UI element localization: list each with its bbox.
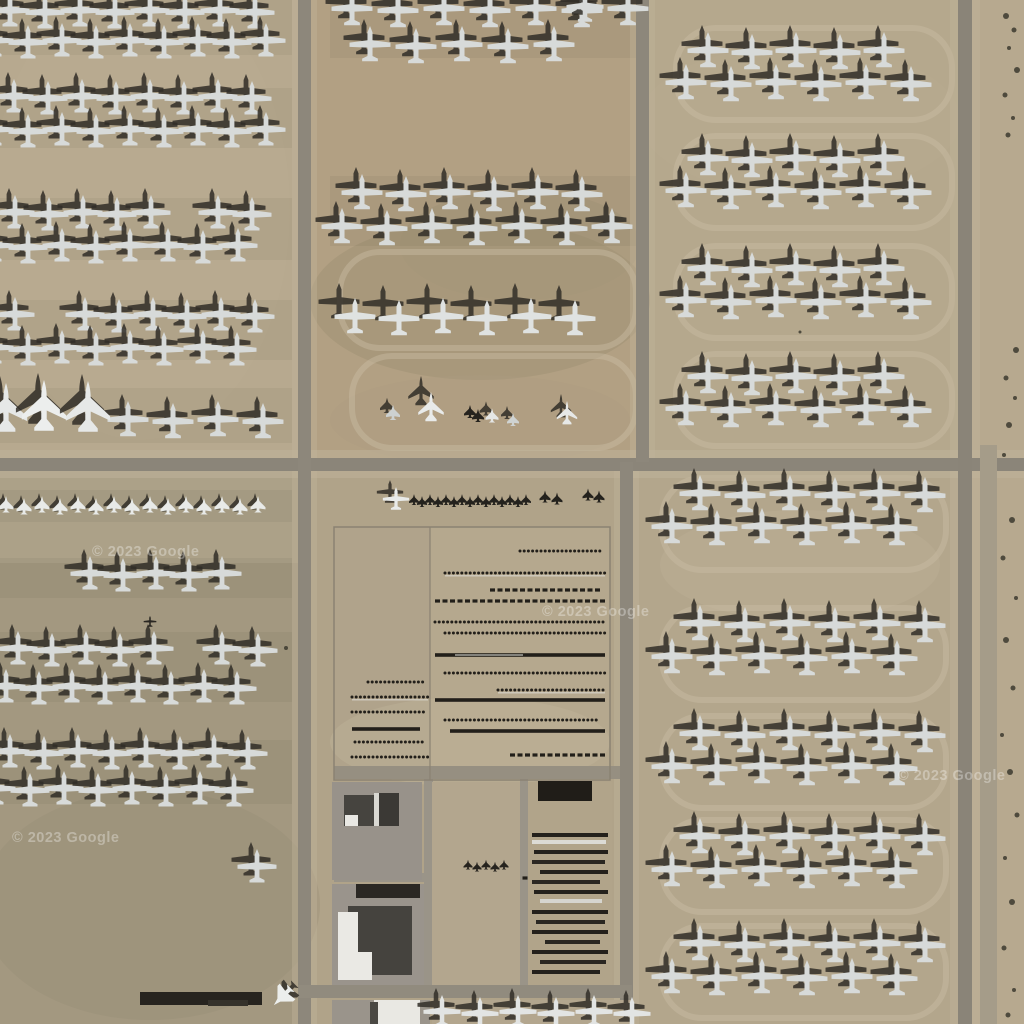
- stored-airframe-dot: [556, 550, 559, 553]
- stored-airframe-dot: [438, 621, 441, 624]
- stored-airframe-dot: [490, 672, 493, 675]
- stored-airframe-dot: [547, 621, 550, 624]
- scrap-dash: [535, 588, 540, 591]
- vegetation: [1003, 856, 1007, 860]
- stored-airframe-dot: [421, 681, 424, 684]
- stored-airframe-dot: [565, 632, 568, 635]
- stored-airframe-dot: [551, 621, 554, 624]
- stored-airframe-dot: [473, 719, 476, 722]
- scrap-dash: [543, 588, 548, 591]
- building: [374, 793, 379, 826]
- vegetation: [1003, 637, 1009, 643]
- stored-airframe-dot: [481, 572, 484, 575]
- vegetation: [1007, 769, 1013, 775]
- stored-airframe-dot: [393, 696, 396, 699]
- stored-airframe-dot: [372, 711, 375, 714]
- vegetation: [1003, 13, 1009, 19]
- stored-airframe-dot: [444, 719, 447, 722]
- stored-airframe-dot: [421, 741, 424, 744]
- stored-airframe-dot: [371, 681, 374, 684]
- scrap-dash: [523, 876, 528, 879]
- stored-airframe-dot: [498, 672, 501, 675]
- stored-airframe-dot: [540, 719, 543, 722]
- google-watermark: © 2023 Google: [542, 604, 649, 620]
- stored-airframe-dot: [528, 632, 531, 635]
- stored-airframe-dot: [582, 672, 585, 675]
- stored-airframe-dot: [570, 632, 573, 635]
- stored-airframe-dot: [455, 621, 458, 624]
- stored-airframe-dot: [591, 672, 594, 675]
- scrap-strip: [352, 727, 420, 731]
- scrap-dash: [533, 599, 538, 602]
- stored-airframe-dot: [578, 672, 581, 675]
- stored-airframe-dot: [498, 632, 501, 635]
- vegetation: [1006, 422, 1012, 428]
- stored-airframe-dot: [507, 632, 510, 635]
- stored-airframe-dot: [414, 756, 417, 759]
- stored-airframe-dot: [422, 711, 425, 714]
- google-watermark: © 2023 Google: [898, 768, 1005, 784]
- scrap-pile: [540, 960, 606, 964]
- scrap-dash: [570, 599, 575, 602]
- stored-airframe-dot: [574, 719, 577, 722]
- scrap-dash: [525, 753, 530, 756]
- stored-airframe-dot: [400, 681, 403, 684]
- stored-airframe-dot: [586, 719, 589, 722]
- stored-airframe-dot: [486, 632, 489, 635]
- stored-airframe-dot: [375, 681, 378, 684]
- stored-airframe-dot: [557, 672, 560, 675]
- stored-airframe-dot: [498, 719, 501, 722]
- stored-airframe-dot: [452, 672, 455, 675]
- stored-airframe-dot: [376, 696, 379, 699]
- stored-airframe-dot: [393, 711, 396, 714]
- stored-airframe-dot: [515, 719, 518, 722]
- stored-airframe-dot: [602, 689, 605, 692]
- stored-airframe-dot: [372, 696, 375, 699]
- stored-airframe-dot: [502, 719, 505, 722]
- stored-airframe-dot: [582, 719, 585, 722]
- stored-airframe-dot: [480, 621, 483, 624]
- stored-airframe-dot: [527, 550, 530, 553]
- stored-airframe-dot: [593, 621, 596, 624]
- stored-airframe-dot: [384, 696, 387, 699]
- scrap-dash: [565, 588, 570, 591]
- stored-airframe-dot: [375, 741, 378, 744]
- stored-airframe-dot: [408, 741, 411, 744]
- stored-airframe-dot: [568, 621, 571, 624]
- stored-airframe-dot: [418, 711, 421, 714]
- stored-airframe-dot: [586, 632, 589, 635]
- stored-airframe-dot: [582, 550, 585, 553]
- scrap-dash: [533, 753, 538, 756]
- stored-airframe-dot: [519, 632, 522, 635]
- stored-airframe-dot: [518, 689, 521, 692]
- stored-airframe-dot: [477, 572, 480, 575]
- stored-airframe-dot: [465, 719, 468, 722]
- stored-airframe-dot: [359, 756, 362, 759]
- stored-airframe-dot: [502, 572, 505, 575]
- stored-airframe-dot: [384, 711, 387, 714]
- stored-airframe-dot: [561, 550, 564, 553]
- stored-airframe-dot: [383, 741, 386, 744]
- stored-airframe-dot: [460, 632, 463, 635]
- stored-airframe-dot: [564, 689, 567, 692]
- vegetation: [1013, 396, 1017, 400]
- stored-airframe-dot: [405, 696, 408, 699]
- stored-airframe-dot: [595, 719, 598, 722]
- vegetation: [1009, 899, 1015, 905]
- stored-airframe-dot: [505, 689, 508, 692]
- stored-airframe-dot: [448, 719, 451, 722]
- stored-airframe-dot: [418, 696, 421, 699]
- road: [636, 0, 649, 462]
- vegetation: [1006, 1013, 1011, 1018]
- stored-airframe-dot: [492, 621, 495, 624]
- scrap-dash: [518, 753, 523, 756]
- stored-airframe-dot: [534, 689, 537, 692]
- scrap-dash: [528, 588, 533, 591]
- vegetation: [1011, 116, 1015, 120]
- road: [620, 462, 633, 1024]
- scrap-dash: [563, 599, 568, 602]
- stored-airframe-dot: [359, 711, 362, 714]
- stored-airframe-dot: [578, 572, 581, 575]
- stored-airframe-dot: [452, 632, 455, 635]
- stored-airframe-dot: [597, 621, 600, 624]
- stored-airframe-dot: [422, 756, 425, 759]
- stored-airframe-dot: [536, 719, 539, 722]
- stored-airframe-dot: [497, 621, 500, 624]
- stored-airframe-dot: [532, 632, 535, 635]
- stored-airframe-dot: [565, 572, 568, 575]
- stored-airframe-dot: [544, 550, 547, 553]
- stored-airframe-dot: [552, 550, 555, 553]
- scrap-dash: [595, 588, 600, 591]
- stored-airframe-dot: [460, 719, 463, 722]
- stored-airframe-dot: [477, 632, 480, 635]
- scrap-dash: [503, 599, 508, 602]
- stored-airframe-dot: [544, 719, 547, 722]
- stored-airframe-dot: [363, 756, 366, 759]
- scrap-strip: [450, 729, 605, 733]
- stored-airframe-dot: [589, 621, 592, 624]
- stored-airframe-dot: [586, 672, 589, 675]
- scrap-dash: [558, 588, 563, 591]
- stored-airframe-dot: [532, 672, 535, 675]
- stored-airframe-dot: [515, 572, 518, 575]
- stored-airframe-dot: [585, 621, 588, 624]
- stored-airframe-dot: [384, 756, 387, 759]
- stored-airframe-dot: [513, 689, 516, 692]
- scrap-dash: [548, 753, 553, 756]
- stored-airframe-dot: [469, 632, 472, 635]
- scrap-pile: [532, 930, 608, 934]
- stored-airframe-dot: [536, 572, 539, 575]
- stored-airframe-highlight: [498, 692, 605, 693]
- stored-airframe-dot: [351, 756, 354, 759]
- stored-airframe-dot: [595, 672, 598, 675]
- stored-airframe-dot: [418, 756, 421, 759]
- stored-airframe-dot: [413, 681, 416, 684]
- stored-airframe-dot: [444, 632, 447, 635]
- stored-airframe-dot: [469, 572, 472, 575]
- stored-airframe-dot: [589, 689, 592, 692]
- stored-airframe-dot: [581, 689, 584, 692]
- stored-airframe-dot: [530, 689, 533, 692]
- scrap-dash: [488, 599, 493, 602]
- stored-airframe-dot: [564, 621, 567, 624]
- scrap-dash: [435, 599, 440, 602]
- vegetation: [1002, 453, 1006, 457]
- stored-airframe-dot: [481, 719, 484, 722]
- scrap-pile: [536, 920, 605, 924]
- stored-airframe-dot: [409, 711, 412, 714]
- stored-airframe-dot: [507, 719, 510, 722]
- stored-airframe-dot: [494, 572, 497, 575]
- stored-airframe-dot: [574, 632, 577, 635]
- stored-airframe-dot: [553, 572, 556, 575]
- stored-airframe-dot: [391, 741, 394, 744]
- stored-airframe-dot: [548, 550, 551, 553]
- stored-airframe-dot: [507, 672, 510, 675]
- vegetation: [1013, 347, 1019, 353]
- vegetation: [1006, 133, 1011, 138]
- stored-airframe-dot: [452, 572, 455, 575]
- paved-lot: [432, 782, 520, 985]
- scrap-pile: [208, 1000, 248, 1006]
- stored-airframe-dot: [540, 632, 543, 635]
- scrap-pile: [532, 860, 605, 864]
- stored-airframe-dot: [530, 621, 533, 624]
- stored-airframe-dot: [463, 621, 466, 624]
- stored-airframe-dot: [434, 621, 437, 624]
- stored-airframe-dot: [593, 689, 596, 692]
- stored-airframe-dot: [581, 621, 584, 624]
- stored-airframe-dot: [401, 711, 404, 714]
- stored-airframe-dot: [585, 689, 588, 692]
- vegetation: [1012, 988, 1016, 992]
- stored-airframe-dot: [355, 756, 358, 759]
- stored-airframe-dot: [484, 621, 487, 624]
- stored-airframe-dot: [532, 572, 535, 575]
- stored-airframe-dot: [388, 756, 391, 759]
- stored-airframe-dot: [367, 756, 370, 759]
- map-canvas[interactable]: © 2023 Google© 2023 Google© 2023 Google©…: [0, 0, 1024, 1024]
- stored-airframe-dot: [412, 741, 415, 744]
- stored-airframe-dot: [539, 689, 542, 692]
- stored-airframe-dot: [456, 632, 459, 635]
- stored-airframe-dot: [603, 632, 606, 635]
- stored-airframe-dot: [509, 621, 512, 624]
- stored-airframe-dot: [401, 756, 404, 759]
- stored-airframe-dot: [511, 672, 514, 675]
- stored-airframe-dot: [523, 632, 526, 635]
- vegetation: [1007, 46, 1011, 50]
- stored-airframe-dot: [557, 572, 560, 575]
- stored-airframe-dot: [515, 632, 518, 635]
- stored-airframe-dot: [597, 689, 600, 692]
- stored-airframe-dot: [426, 756, 429, 759]
- stored-airframe-dot: [594, 550, 597, 553]
- scrap-dash: [585, 599, 590, 602]
- stored-airframe-dot: [355, 696, 358, 699]
- stored-airframe-dot: [543, 621, 546, 624]
- stored-airframe-dot: [511, 632, 514, 635]
- stored-airframe-dot: [528, 719, 531, 722]
- stored-airframe-dot: [405, 756, 408, 759]
- stored-airframe-dot: [469, 719, 472, 722]
- scrap-pile: [356, 884, 420, 898]
- vegetation: [1000, 733, 1004, 737]
- scrap-pile: [532, 910, 608, 914]
- vegetation: [1015, 813, 1020, 818]
- stored-airframe-dot: [602, 621, 605, 624]
- stored-airframe-dot: [531, 550, 534, 553]
- stored-airframe-dot: [388, 696, 391, 699]
- scrap-dash: [473, 599, 478, 602]
- road: [520, 779, 528, 985]
- stored-airframe-dot: [486, 572, 489, 575]
- stored-airframe-dot: [577, 550, 580, 553]
- stored-airframe-dot: [553, 719, 556, 722]
- stored-airframe-dot: [561, 632, 564, 635]
- stored-airframe-dot: [444, 672, 447, 675]
- stored-airframe-dot: [565, 719, 568, 722]
- scrap-dash: [450, 599, 455, 602]
- stored-airframe-dot: [490, 572, 493, 575]
- stored-airframe-dot: [497, 689, 500, 692]
- stored-airframe-dot: [376, 711, 379, 714]
- stored-airframe-dot: [409, 756, 412, 759]
- satellite-imagery: © 2023 Google© 2023 Google© 2023 Google©…: [0, 0, 1024, 1024]
- stored-airframe-dot: [396, 681, 399, 684]
- scrap-dash: [510, 599, 515, 602]
- stored-airframe-dot: [367, 696, 370, 699]
- road: [424, 779, 433, 985]
- stored-airframe-dot: [547, 689, 550, 692]
- stored-airframe-dot: [494, 719, 497, 722]
- stored-airframe-dot: [351, 696, 354, 699]
- stored-airframe-dot: [397, 756, 400, 759]
- stored-airframe-dot: [565, 672, 568, 675]
- vegetation: [1009, 517, 1015, 523]
- scrap-dash: [495, 599, 500, 602]
- scrap-pile: [532, 950, 608, 954]
- stored-airframe-dot: [476, 621, 479, 624]
- stored-airframe-dot: [404, 681, 407, 684]
- scrap-dash: [600, 753, 605, 756]
- stored-airframe-dot: [568, 689, 571, 692]
- stored-airframe-dot: [511, 572, 514, 575]
- stored-airframe-dot: [359, 696, 362, 699]
- stored-airframe-dot: [379, 681, 382, 684]
- stored-airframe-dot: [528, 672, 531, 675]
- scrap-dash: [518, 599, 523, 602]
- stored-airframe-dot: [599, 672, 602, 675]
- stored-airframe-dot: [573, 550, 576, 553]
- stored-airframe-dot: [551, 689, 554, 692]
- stored-airframe-dot: [409, 696, 412, 699]
- stored-airframe-dot: [367, 711, 370, 714]
- scrap-dash: [588, 588, 593, 591]
- stored-airframe-dot: [540, 672, 543, 675]
- stored-airframe-dot: [465, 572, 468, 575]
- scrap-dash: [490, 588, 495, 591]
- stored-airframe-dot: [486, 672, 489, 675]
- vegetation: [1001, 556, 1006, 561]
- stored-airframe-dot: [473, 572, 476, 575]
- stored-airframe-dot: [400, 741, 403, 744]
- stored-airframe-dot: [544, 672, 547, 675]
- stored-airframe-dot: [560, 689, 563, 692]
- scrap-dash: [480, 599, 485, 602]
- stored-airframe-dot: [574, 572, 577, 575]
- stored-airframe-dot: [448, 672, 451, 675]
- stored-airframe-dot: [511, 719, 514, 722]
- scrap-strip-highlight: [455, 654, 523, 655]
- stored-airframe-dot: [469, 672, 472, 675]
- stored-airframe-dot: [392, 681, 395, 684]
- stored-airframe-dot: [549, 632, 552, 635]
- stored-airframe-dot: [488, 621, 491, 624]
- stored-airframe-dot: [569, 550, 572, 553]
- stored-airframe-dot: [404, 741, 407, 744]
- vegetation: [1011, 686, 1016, 691]
- stored-airframe-dot: [367, 681, 370, 684]
- stored-airframe-dot: [570, 572, 573, 575]
- stored-airframe-dot: [502, 632, 505, 635]
- stored-airframe-dot: [401, 696, 404, 699]
- stored-airframe-dot: [456, 572, 459, 575]
- stored-airframe-dot: [549, 719, 552, 722]
- scrap-pile: [545, 940, 600, 944]
- stored-airframe-dot: [603, 672, 606, 675]
- stored-airframe-dot: [471, 621, 474, 624]
- stored-airframe-dot: [578, 719, 581, 722]
- scrap-dash: [540, 753, 545, 756]
- stored-airframe-dot: [526, 689, 529, 692]
- stored-airframe-dot: [380, 756, 383, 759]
- stored-airframe-highlight: [445, 575, 605, 576]
- stored-airframe-dot: [459, 621, 462, 624]
- stored-airframe-dot: [498, 572, 501, 575]
- scrap-dash: [540, 599, 545, 602]
- stored-airframe-dot: [477, 672, 480, 675]
- road: [298, 0, 311, 1024]
- stored-airframe-dot: [388, 681, 391, 684]
- stored-airframe-dot: [355, 711, 358, 714]
- road: [334, 766, 620, 779]
- stored-airframe-dot: [523, 550, 526, 553]
- scrap-dash: [578, 753, 583, 756]
- stored-airframe-dot: [528, 572, 531, 575]
- road: [298, 985, 632, 998]
- stored-airframe-dot: [460, 572, 463, 575]
- scrap-dash: [555, 599, 560, 602]
- stored-airframe-dot: [599, 572, 602, 575]
- stored-airframe-dot: [539, 621, 542, 624]
- stored-airframe-dot: [603, 572, 606, 575]
- stored-airframe-dot: [444, 572, 447, 575]
- stored-airframe-dot: [534, 621, 537, 624]
- stored-airframe-dot: [532, 719, 535, 722]
- stored-airframe-dot: [490, 719, 493, 722]
- stored-airframe-dot: [513, 621, 516, 624]
- stored-airframe-dot: [465, 672, 468, 675]
- stored-airframe-dot: [501, 621, 504, 624]
- stored-airframe-dot: [481, 672, 484, 675]
